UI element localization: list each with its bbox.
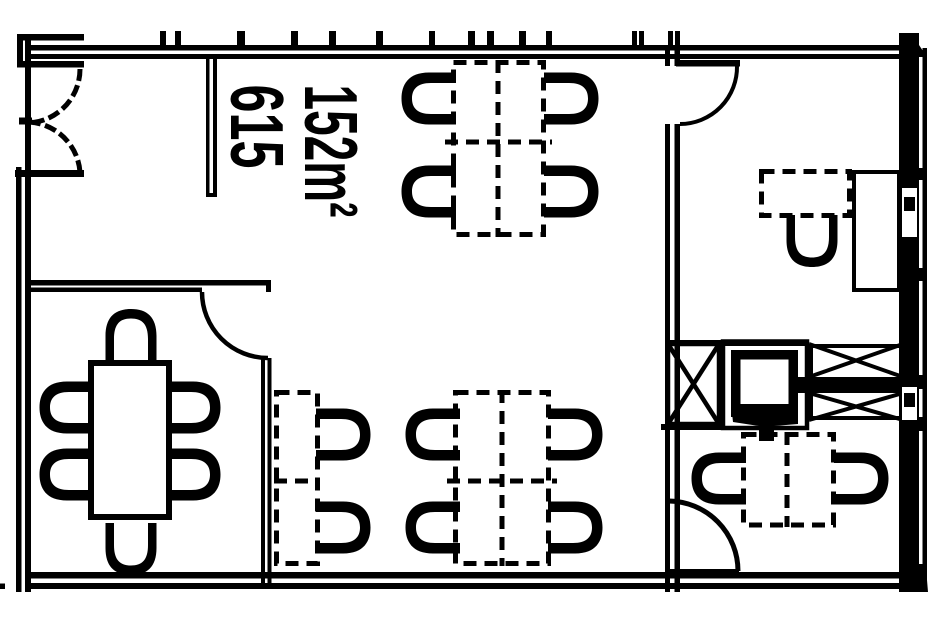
svg-text:152m²: 152m²: [289, 85, 373, 218]
svg-text:615: 615: [215, 85, 299, 169]
